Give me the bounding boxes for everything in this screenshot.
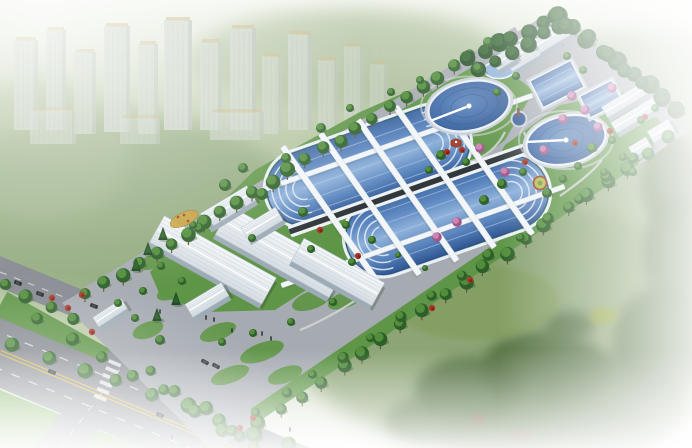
scene-svg: [0, 0, 692, 448]
haze-overlays: [0, 0, 692, 448]
haze-overlay: [0, 0, 692, 448]
aerial-rendering: Bird's-eye architectural rendering of a …: [0, 0, 692, 448]
